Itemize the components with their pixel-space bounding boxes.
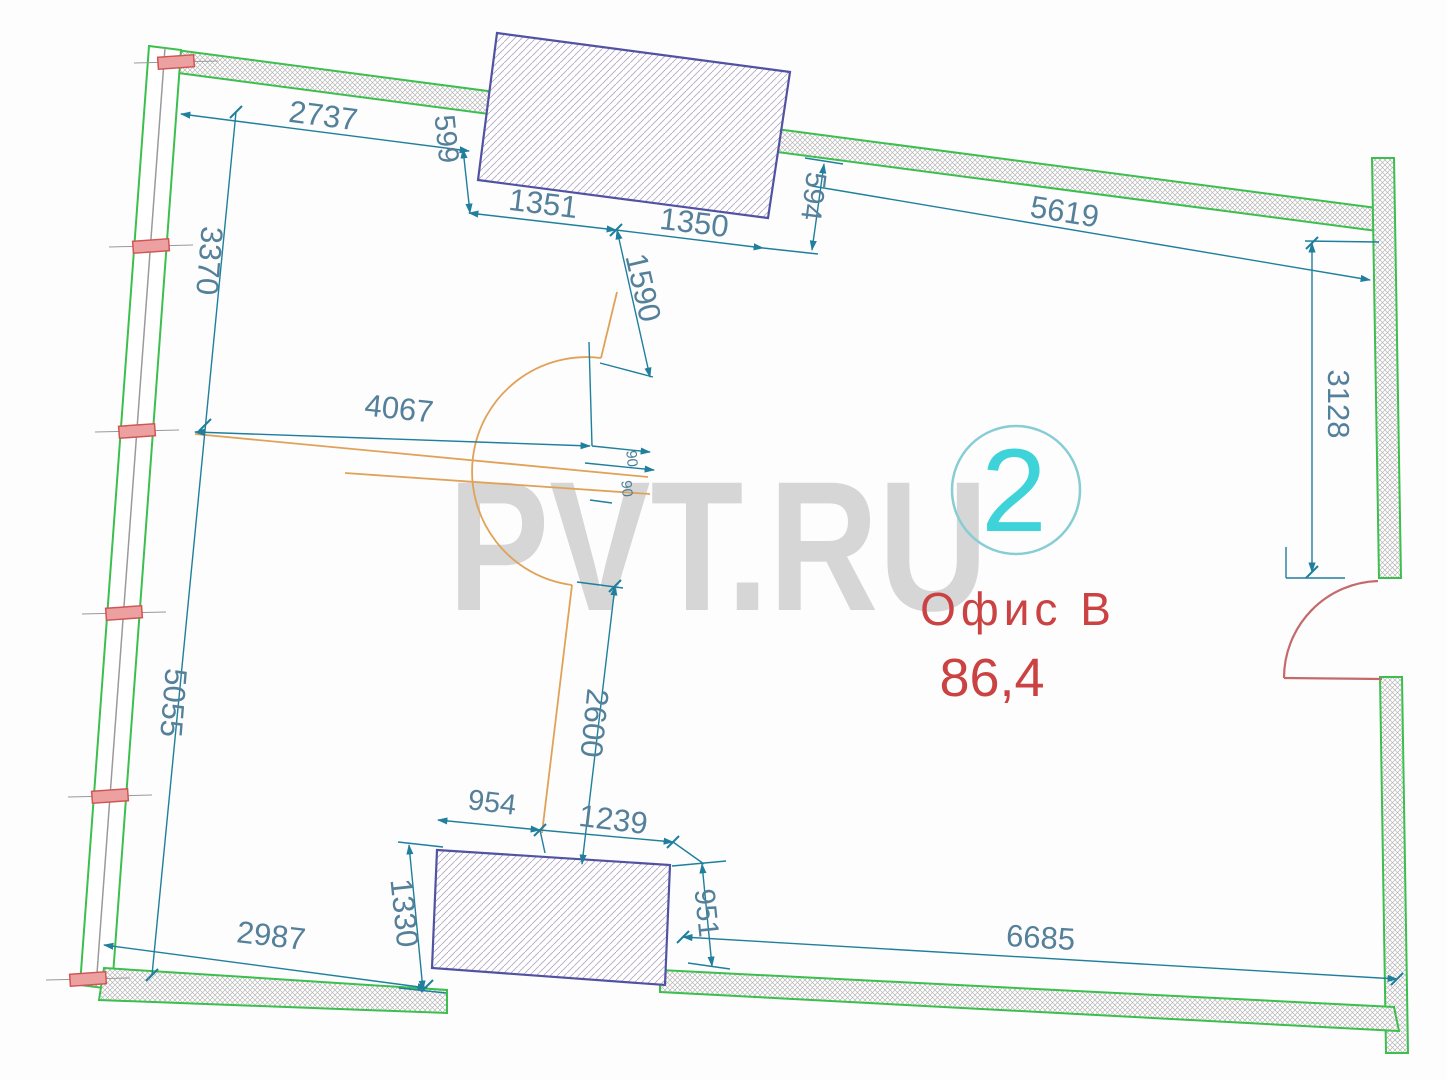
wall-right-lower: [1380, 677, 1408, 1053]
watermark-text: PVT.RU: [448, 444, 988, 650]
dim-mid-small-a: 90: [622, 450, 640, 468]
room-area: 86,4: [939, 648, 1044, 708]
dim-mid-horizontal: 4067: [363, 388, 435, 430]
mullion-tick: [119, 424, 156, 438]
dim-mid-vertical-upper: 1590: [618, 250, 668, 325]
mullion-tick: [158, 55, 195, 69]
dim-bottom-left: 2987: [235, 914, 307, 957]
room-name: Офис В: [920, 583, 1116, 635]
dim-top-offset-left: 599: [428, 113, 465, 164]
floorplan-page: PVT.RU: [0, 0, 1447, 1080]
door-leaf: [1284, 678, 1382, 679]
door: [1284, 581, 1382, 679]
mullion-tick: [106, 606, 143, 620]
unit-number: 2: [981, 425, 1047, 557]
dim-bottom-block-height-right: 951: [688, 887, 725, 938]
mullion-tick: [133, 239, 170, 253]
door-swing-arc: [1284, 581, 1378, 678]
mullion-tick: [70, 972, 107, 986]
wall-right-upper: [1372, 158, 1401, 578]
dim-top-offset-right: 594: [794, 170, 832, 222]
dim-bottom-right: 6685: [1005, 918, 1076, 957]
wall-bottom-right: [660, 970, 1399, 1031]
dim-left-upper: 3370: [189, 225, 229, 297]
floorplan-drawing: PVT.RU: [0, 0, 1447, 1080]
dim-top-left: 2737: [287, 94, 360, 137]
dim-bottom-block-height-left: 1330: [383, 877, 425, 949]
dim-left-lower: 5055: [153, 667, 193, 739]
dim-mid-small-b: 90: [617, 480, 635, 498]
mullion-tick: [92, 789, 129, 803]
dim-top-right: 5619: [1028, 189, 1102, 234]
dim-bottom-block-left: 954: [466, 784, 518, 822]
dim-mid-vertical-lower: 2600: [573, 687, 615, 759]
dim-block-right: 1350: [658, 201, 731, 244]
shaft-block-bottom: [432, 850, 670, 985]
dim-right-upper: 3128: [1321, 370, 1356, 439]
